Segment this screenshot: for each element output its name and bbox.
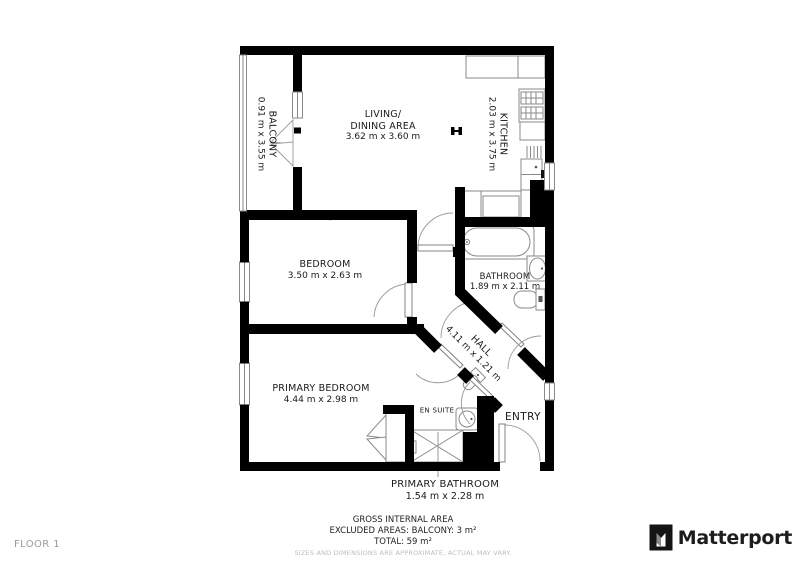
primary-bedroom-label: PRIMARY BEDROOM 4.44 m x 2.98 m xyxy=(272,383,369,406)
balcony-glass-wall-icon xyxy=(240,55,247,211)
total-area: TOTAL: 59 m² xyxy=(294,537,511,548)
closet-icon xyxy=(367,413,407,462)
balcony-label: BALCONY 0.91 m x 3.55 m xyxy=(255,97,278,171)
matterport-logo: Matterport xyxy=(649,524,792,551)
entry-label: ENTRY xyxy=(505,411,541,423)
bedroom-window-icon xyxy=(240,260,250,304)
excluded-areas: EXCLUDED AREAS: BALCONY: 3 m² xyxy=(294,526,511,537)
floor-plan-page: BALCONY 0.91 m x 3.55 m LIVING/ DINING A… xyxy=(0,0,800,565)
bathtub-icon xyxy=(459,225,534,259)
en-suite-label: EN SUITE xyxy=(420,405,455,417)
shower-icon xyxy=(408,430,463,462)
floor-label: FLOOR 1 xyxy=(14,539,60,550)
kitchen-label: KITCHEN 2.03 m x 3.75 m xyxy=(486,97,509,171)
ensuite-sink-icon xyxy=(456,408,478,430)
open-plan-marker-icon xyxy=(451,127,462,135)
primary-bathroom-label: PRIMARY BATHROOM 1.54 m x 2.28 m xyxy=(391,479,499,503)
living-dining-label: LIVING/ DINING AREA 3.62 m x 3.60 m xyxy=(346,109,420,143)
area-summary: GROSS INTERNAL AREA EXCLUDED AREAS: BALC… xyxy=(294,515,511,558)
bedroom-label: BEDROOM 3.50 m x 2.63 m xyxy=(288,259,362,282)
brand-name: Matterport xyxy=(678,527,792,549)
primary-bedroom-window-icon xyxy=(240,361,250,407)
gross-internal-area: GROSS INTERNAL AREA xyxy=(294,515,511,526)
living-window-icon xyxy=(293,92,303,118)
matterport-logo-mark xyxy=(649,524,673,551)
disclaimer-text: SIZES AND DIMENSIONS ARE APPROXIMATE, AC… xyxy=(294,548,511,558)
entry-window-icon xyxy=(545,383,555,400)
toilet-icon xyxy=(514,289,545,310)
bathroom-label: BATHROOM 1.89 m x 2.11 m xyxy=(470,272,540,292)
kitchen-window-icon xyxy=(545,163,555,190)
